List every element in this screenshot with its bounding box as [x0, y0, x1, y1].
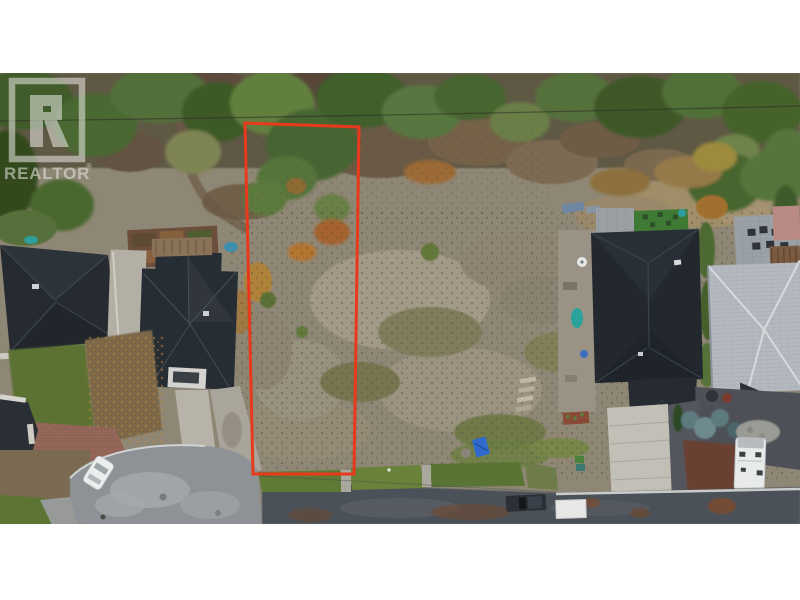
- blue-pool-item: [224, 242, 238, 252]
- registered-mark: ®: [86, 162, 92, 171]
- rear-deck: [152, 237, 213, 257]
- chimney: [32, 284, 39, 289]
- garden-bed-small: [563, 411, 590, 425]
- concrete-driveway: [607, 404, 672, 502]
- house-far-right-roof: [708, 260, 800, 397]
- grass-strip-3: [430, 462, 525, 487]
- realtor-watermark-text: REALTOR: [4, 164, 90, 183]
- teal-bin: [576, 464, 585, 471]
- aerial-photo: REALTOR ®: [0, 65, 800, 525]
- teal-pool: [24, 236, 38, 244]
- aerial-photo-canvas: REALTOR ®: [0, 0, 800, 600]
- grass-strip-2: [350, 465, 425, 490]
- forest-speckle: [250, 130, 550, 220]
- green-bin: [575, 456, 584, 463]
- teal-pool-right: [571, 308, 583, 328]
- white-trailer: [556, 499, 587, 518]
- pickup-truck: [506, 494, 547, 512]
- screenshot-root: REALTOR ®: [0, 0, 800, 600]
- rv-motorhome: [734, 437, 766, 490]
- shed-roof: [772, 206, 800, 241]
